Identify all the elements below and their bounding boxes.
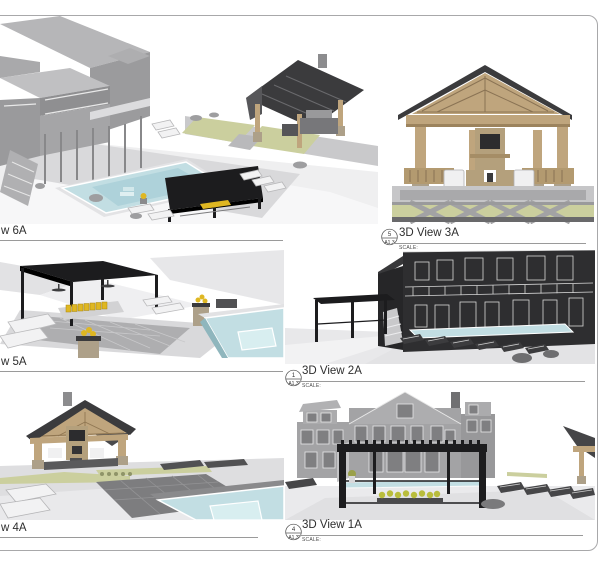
lawn-strip — [507, 472, 547, 478]
view-1a-underline — [296, 535, 583, 536]
view-1a-title: 3D View 1A — [302, 519, 362, 531]
render-3d-view-2a — [285, 250, 595, 364]
view-6a-title: w 6A — [1, 225, 27, 237]
view-4a-underline — [0, 537, 258, 538]
view-3a-underline — [393, 243, 586, 244]
drawing-sheet: w 6A w 5A w 4A 5 A1.3 3D View 3A SCALE: … — [0, 0, 600, 568]
pavilion-partial — [563, 426, 595, 484]
pool-spa — [198, 304, 284, 358]
view-3a-title: 3D View 3A — [399, 227, 459, 239]
view-6a-illustration — [0, 16, 378, 224]
view-4a-illustration — [0, 386, 284, 520]
view-2a-illustration — [285, 250, 595, 364]
view-3a-illustration — [392, 20, 594, 224]
view-5a-title: w 5A — [1, 356, 27, 368]
pavilion-roof — [398, 65, 572, 127]
view-4a-title: w 4A — [1, 522, 27, 534]
view-2a-underline — [296, 381, 585, 382]
view-5a-underline — [0, 371, 283, 372]
render-3d-view-1a — [285, 386, 595, 520]
render-3d-view-4a — [0, 386, 284, 520]
fire-bowl — [140, 193, 147, 204]
view-1a-scale-label: SCALE: — [302, 537, 321, 543]
view-2a-reference-bubble: 1 A1.3 — [284, 369, 303, 387]
render-3d-view-6a — [0, 16, 378, 224]
lawn-walkway — [392, 202, 594, 222]
view-5a-illustration — [0, 250, 284, 358]
view-6a-underline — [0, 240, 283, 241]
house-shape — [297, 392, 495, 482]
view-2a-scale-label: SCALE: — [302, 383, 321, 389]
render-3d-view-3a — [392, 20, 594, 224]
pavilion-shape — [26, 392, 136, 470]
view-2a-title: 3D View 2A — [302, 365, 362, 377]
boulder — [481, 499, 505, 509]
grill — [216, 299, 237, 308]
view-3a-scale-label: SCALE: — [399, 245, 418, 251]
potted-plant — [348, 470, 356, 483]
view-1a-reference-bubble: 4 A1.3 — [284, 523, 303, 541]
view-1a-illustration — [285, 386, 595, 520]
render-3d-view-5a — [0, 250, 284, 358]
